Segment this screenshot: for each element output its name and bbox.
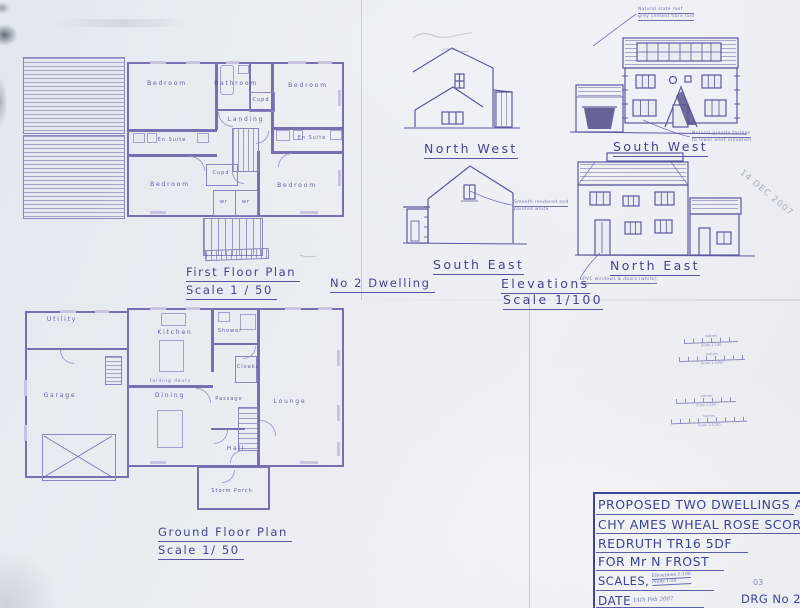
blueprint-scan: Bedroom Bathroom Bedroom Cupd En Suite L… [0, 0, 800, 608]
pencil-marks [300, 33, 472, 257]
leader-lines [44, 14, 690, 477]
annotation-overlay [0, 0, 800, 608]
